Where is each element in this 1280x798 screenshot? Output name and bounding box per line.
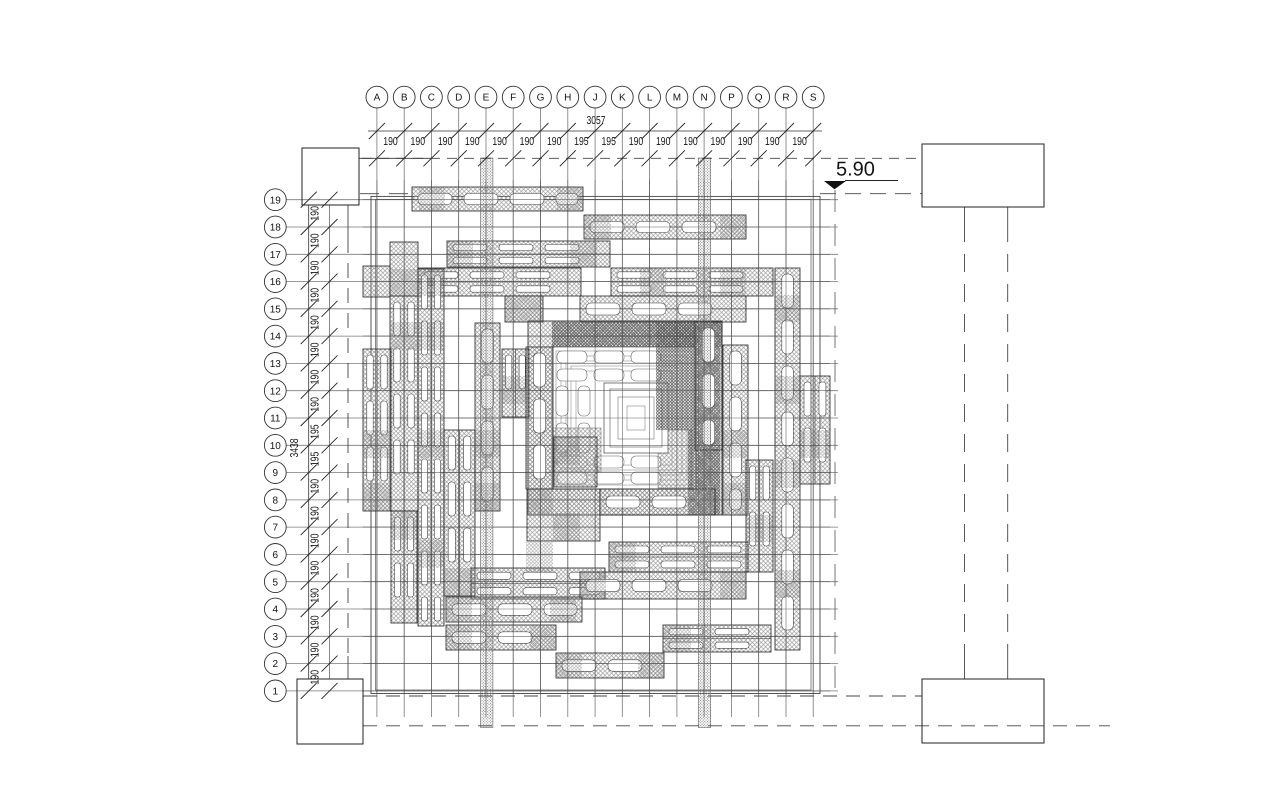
svg-text:190: 190 xyxy=(411,136,426,148)
svg-text:17: 17 xyxy=(270,250,282,261)
svg-text:190: 190 xyxy=(310,370,322,385)
svg-text:F: F xyxy=(510,93,516,104)
svg-text:5.90: 5.90 xyxy=(836,159,875,181)
svg-text:M: M xyxy=(673,93,681,104)
svg-text:9: 9 xyxy=(273,468,279,479)
svg-text:18: 18 xyxy=(270,223,282,234)
svg-text:J: J xyxy=(593,93,598,104)
svg-text:190: 190 xyxy=(711,136,726,148)
svg-text:190: 190 xyxy=(309,233,321,248)
svg-text:195: 195 xyxy=(601,136,616,148)
svg-text:190: 190 xyxy=(738,136,753,148)
svg-text:3: 3 xyxy=(273,632,279,643)
svg-text:1: 1 xyxy=(273,687,279,698)
svg-text:A: A xyxy=(374,93,381,104)
svg-text:3057: 3057 xyxy=(587,115,606,127)
svg-text:C: C xyxy=(428,93,435,104)
svg-text:G: G xyxy=(537,93,545,104)
svg-text:N: N xyxy=(700,93,707,104)
svg-text:190: 190 xyxy=(310,561,322,576)
svg-text:2: 2 xyxy=(273,659,279,670)
svg-text:190: 190 xyxy=(520,136,535,148)
svg-text:4: 4 xyxy=(273,605,279,616)
svg-text:13: 13 xyxy=(270,359,282,370)
svg-text:H: H xyxy=(564,93,571,104)
svg-text:8: 8 xyxy=(273,496,279,507)
svg-text:195: 195 xyxy=(309,452,321,467)
svg-text:190: 190 xyxy=(629,136,644,148)
svg-text:195: 195 xyxy=(574,136,589,148)
svg-text:19: 19 xyxy=(270,195,282,206)
svg-text:190: 190 xyxy=(310,397,322,412)
svg-text:E: E xyxy=(483,93,490,104)
svg-text:190: 190 xyxy=(438,136,453,148)
svg-text:190: 190 xyxy=(656,136,671,148)
svg-text:190: 190 xyxy=(309,261,321,276)
svg-text:14: 14 xyxy=(270,332,282,343)
svg-text:190: 190 xyxy=(309,479,321,494)
svg-text:190: 190 xyxy=(465,136,480,148)
svg-text:190: 190 xyxy=(310,588,322,603)
svg-text:190: 190 xyxy=(310,315,322,330)
svg-text:190: 190 xyxy=(309,288,321,303)
svg-text:190: 190 xyxy=(383,136,398,148)
svg-text:190: 190 xyxy=(492,136,507,148)
svg-text:190: 190 xyxy=(309,643,321,658)
svg-text:6: 6 xyxy=(273,550,279,561)
svg-text:190: 190 xyxy=(765,136,780,148)
svg-text:16: 16 xyxy=(270,277,282,288)
svg-text:P: P xyxy=(728,93,735,104)
svg-text:D: D xyxy=(455,93,462,104)
svg-text:190: 190 xyxy=(309,670,321,685)
svg-text:190: 190 xyxy=(310,343,322,358)
svg-text:190: 190 xyxy=(309,506,321,521)
svg-text:190: 190 xyxy=(309,615,321,630)
svg-text:190: 190 xyxy=(547,136,562,148)
svg-text:195: 195 xyxy=(309,424,321,439)
svg-text:15: 15 xyxy=(270,304,282,315)
svg-text:7: 7 xyxy=(273,523,279,534)
svg-text:190: 190 xyxy=(310,534,322,549)
svg-text:10: 10 xyxy=(270,441,282,452)
svg-text:190: 190 xyxy=(792,136,807,148)
svg-text:190: 190 xyxy=(683,136,698,148)
svg-text:12: 12 xyxy=(270,386,282,397)
svg-text:L: L xyxy=(647,93,653,104)
svg-text:5: 5 xyxy=(273,577,279,588)
svg-text:K: K xyxy=(619,93,626,104)
svg-text:Q: Q xyxy=(755,93,763,104)
svg-text:190: 190 xyxy=(309,206,321,221)
svg-text:R: R xyxy=(782,93,789,104)
svg-text:11: 11 xyxy=(270,414,281,425)
svg-text:B: B xyxy=(401,93,408,104)
svg-text:3438: 3438 xyxy=(289,439,301,458)
svg-text:S: S xyxy=(810,93,817,104)
